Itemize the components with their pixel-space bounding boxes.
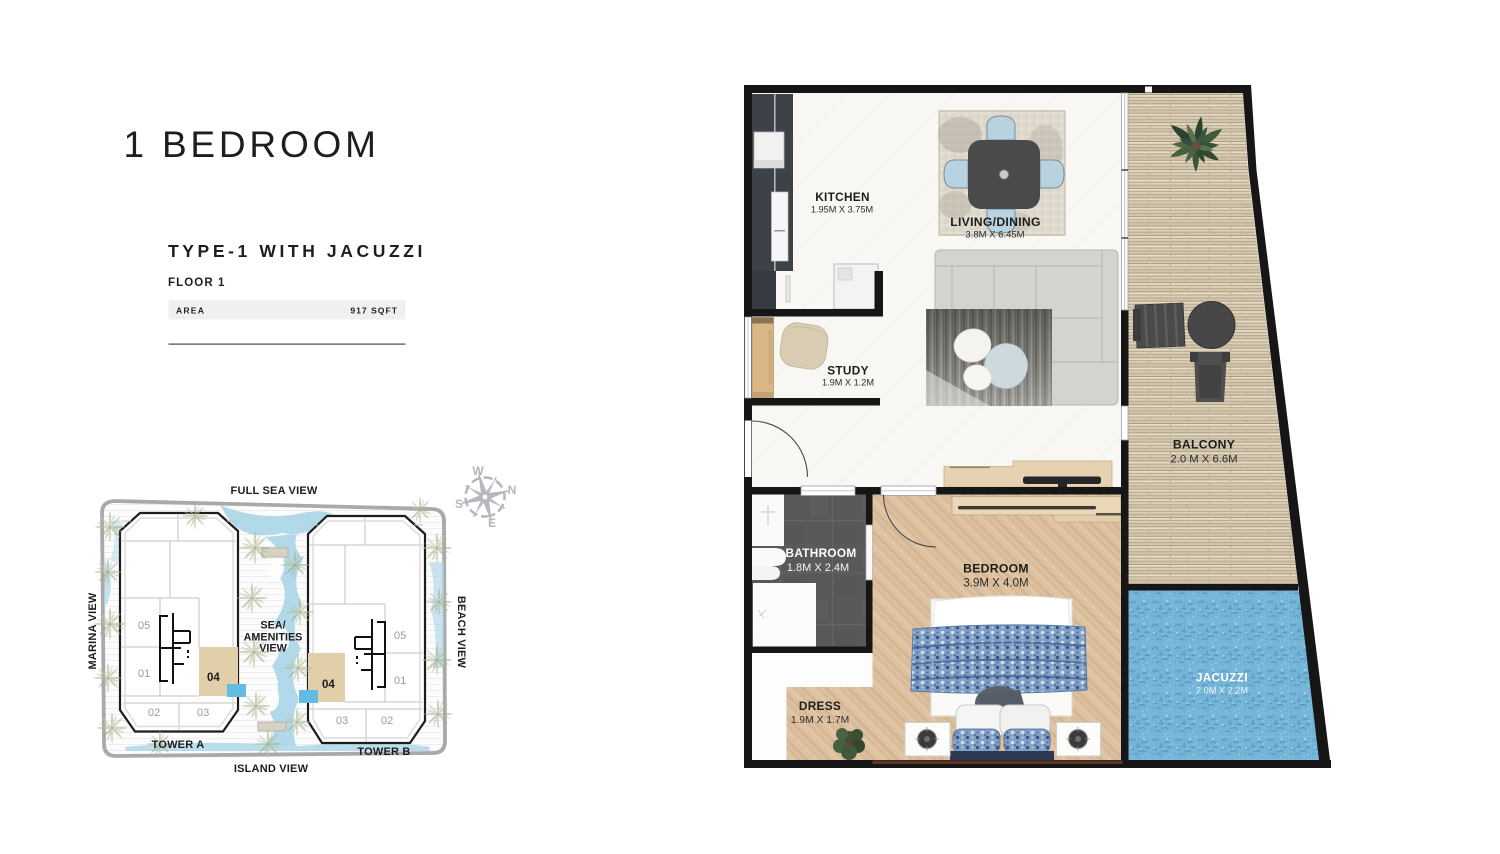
- svg-text:05: 05: [394, 630, 406, 642]
- svg-text:N: N: [508, 483, 517, 497]
- svg-text:2.0 M X 6.6M: 2.0 M X 6.6M: [1170, 454, 1237, 466]
- svg-text:3.8M X 6.45M: 3.8M X 6.45M: [965, 230, 1024, 241]
- svg-text:1 BEDROOM: 1 BEDROOM: [124, 124, 380, 165]
- svg-text:BALCONY: BALCONY: [1173, 438, 1235, 452]
- svg-text:01: 01: [394, 675, 406, 687]
- svg-text:01: 01: [138, 668, 150, 680]
- svg-text:02: 02: [148, 707, 160, 719]
- svg-text:KITCHEN: KITCHEN: [815, 190, 870, 204]
- svg-text:02: 02: [381, 715, 393, 727]
- svg-text:TOWER A: TOWER A: [152, 739, 205, 751]
- svg-text:DRESS: DRESS: [799, 699, 841, 713]
- svg-text:TYPE-1 WITH JACUZZI: TYPE-1 WITH JACUZZI: [168, 241, 426, 261]
- svg-text:STUDY: STUDY: [827, 364, 868, 378]
- svg-text:1.8M X 2.4M: 1.8M X 2.4M: [787, 562, 849, 574]
- svg-text:03: 03: [197, 707, 209, 719]
- svg-text:AREA: AREA: [176, 306, 205, 316]
- svg-text:1.95M X 3.75M: 1.95M X 3.75M: [811, 205, 873, 215]
- svg-text:05: 05: [138, 620, 150, 632]
- svg-text:2.0M X 2.2M: 2.0M X 2.2M: [1196, 686, 1248, 696]
- svg-text:LIVING/DINING: LIVING/DINING: [950, 215, 1041, 229]
- svg-text:ISLAND VIEW: ISLAND VIEW: [234, 763, 309, 775]
- svg-text:SEA/: SEA/: [260, 620, 285, 632]
- svg-text:FULL SEA VIEW: FULL SEA VIEW: [231, 485, 318, 497]
- svg-text:MARINA VIEW: MARINA VIEW: [87, 592, 99, 669]
- svg-text:1.9M X 1.7M: 1.9M X 1.7M: [791, 715, 849, 726]
- svg-text:3.9M X 4.0M: 3.9M X 4.0M: [963, 578, 1028, 590]
- svg-text:VIEW: VIEW: [259, 643, 287, 655]
- svg-text:04: 04: [207, 672, 220, 684]
- svg-text:BEACH VIEW: BEACH VIEW: [455, 596, 467, 669]
- svg-text:917 SQFT: 917 SQFT: [350, 306, 398, 316]
- svg-text:04: 04: [322, 679, 335, 691]
- svg-text:BATHROOM: BATHROOM: [786, 546, 857, 560]
- svg-text:W: W: [472, 464, 484, 478]
- svg-text:BEDROOM: BEDROOM: [963, 562, 1029, 576]
- svg-text:FLOOR 1: FLOOR 1: [168, 277, 226, 289]
- svg-text:E: E: [488, 516, 496, 530]
- svg-text:S: S: [455, 497, 463, 511]
- svg-text:1.9M X 1.2M: 1.9M X 1.2M: [822, 378, 874, 388]
- svg-text:03: 03: [336, 715, 348, 727]
- svg-text:JACUZZI: JACUZZI: [1196, 673, 1248, 685]
- svg-text:TOWER B: TOWER B: [357, 746, 410, 758]
